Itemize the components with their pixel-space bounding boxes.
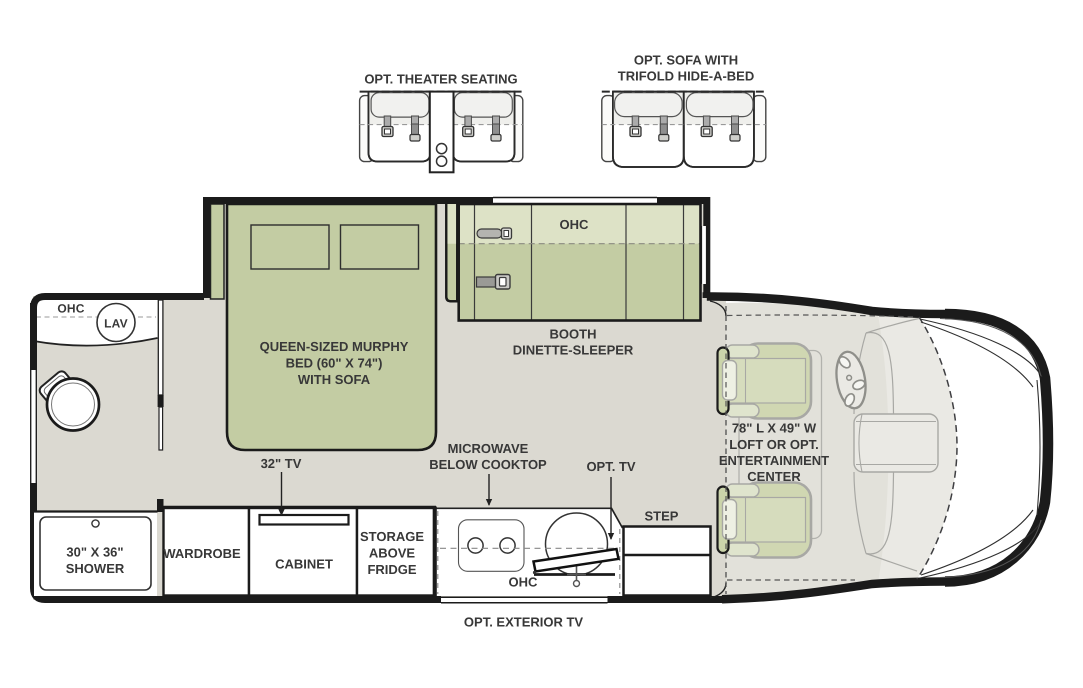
svg-text:STORAGE: STORAGE <box>360 529 424 544</box>
svg-text:LAV: LAV <box>104 317 128 331</box>
svg-text:30" X 36": 30" X 36" <box>66 545 123 560</box>
svg-text:STEP: STEP <box>645 509 679 524</box>
svg-text:78" L X 49" W: 78" L X 49" W <box>732 421 817 436</box>
svg-text:WARDROBE: WARDROBE <box>163 546 241 561</box>
svg-text:OPT. EXTERIOR TV: OPT. EXTERIOR TV <box>464 615 584 630</box>
svg-text:BED (60" X 74"): BED (60" X 74") <box>286 356 383 371</box>
svg-text:LOFT OR OPT.: LOFT OR OPT. <box>729 437 819 452</box>
svg-text:OHC: OHC <box>57 302 84 316</box>
svg-text:TRIFOLD HIDE-A-BED: TRIFOLD HIDE-A-BED <box>618 69 755 84</box>
svg-text:OPT. TV: OPT. TV <box>586 459 635 474</box>
svg-text:DINETTE-SLEEPER: DINETTE-SLEEPER <box>513 343 634 358</box>
svg-text:FRIDGE: FRIDGE <box>367 562 416 577</box>
svg-text:OPT. SOFA WITH: OPT. SOFA WITH <box>634 53 738 68</box>
svg-text:OHC: OHC <box>560 217 590 232</box>
svg-text:SHOWER: SHOWER <box>66 561 125 576</box>
svg-text:CABINET: CABINET <box>275 557 333 572</box>
svg-text:BOOTH: BOOTH <box>550 327 597 342</box>
svg-text:CENTER: CENTER <box>747 469 801 484</box>
svg-text:OHC: OHC <box>509 575 539 590</box>
svg-text:QUEEN-SIZED MURPHY: QUEEN-SIZED MURPHY <box>260 339 409 354</box>
svg-text:ENTERTAINMENT: ENTERTAINMENT <box>719 453 829 468</box>
svg-text:WITH SOFA: WITH SOFA <box>298 372 371 387</box>
svg-text:MICROWAVE: MICROWAVE <box>448 441 529 456</box>
svg-text:32" TV: 32" TV <box>261 456 302 471</box>
svg-text:OPT. THEATER SEATING: OPT. THEATER SEATING <box>364 72 517 87</box>
svg-text:BELOW COOKTOP: BELOW COOKTOP <box>429 457 547 472</box>
svg-text:ABOVE: ABOVE <box>369 546 416 561</box>
